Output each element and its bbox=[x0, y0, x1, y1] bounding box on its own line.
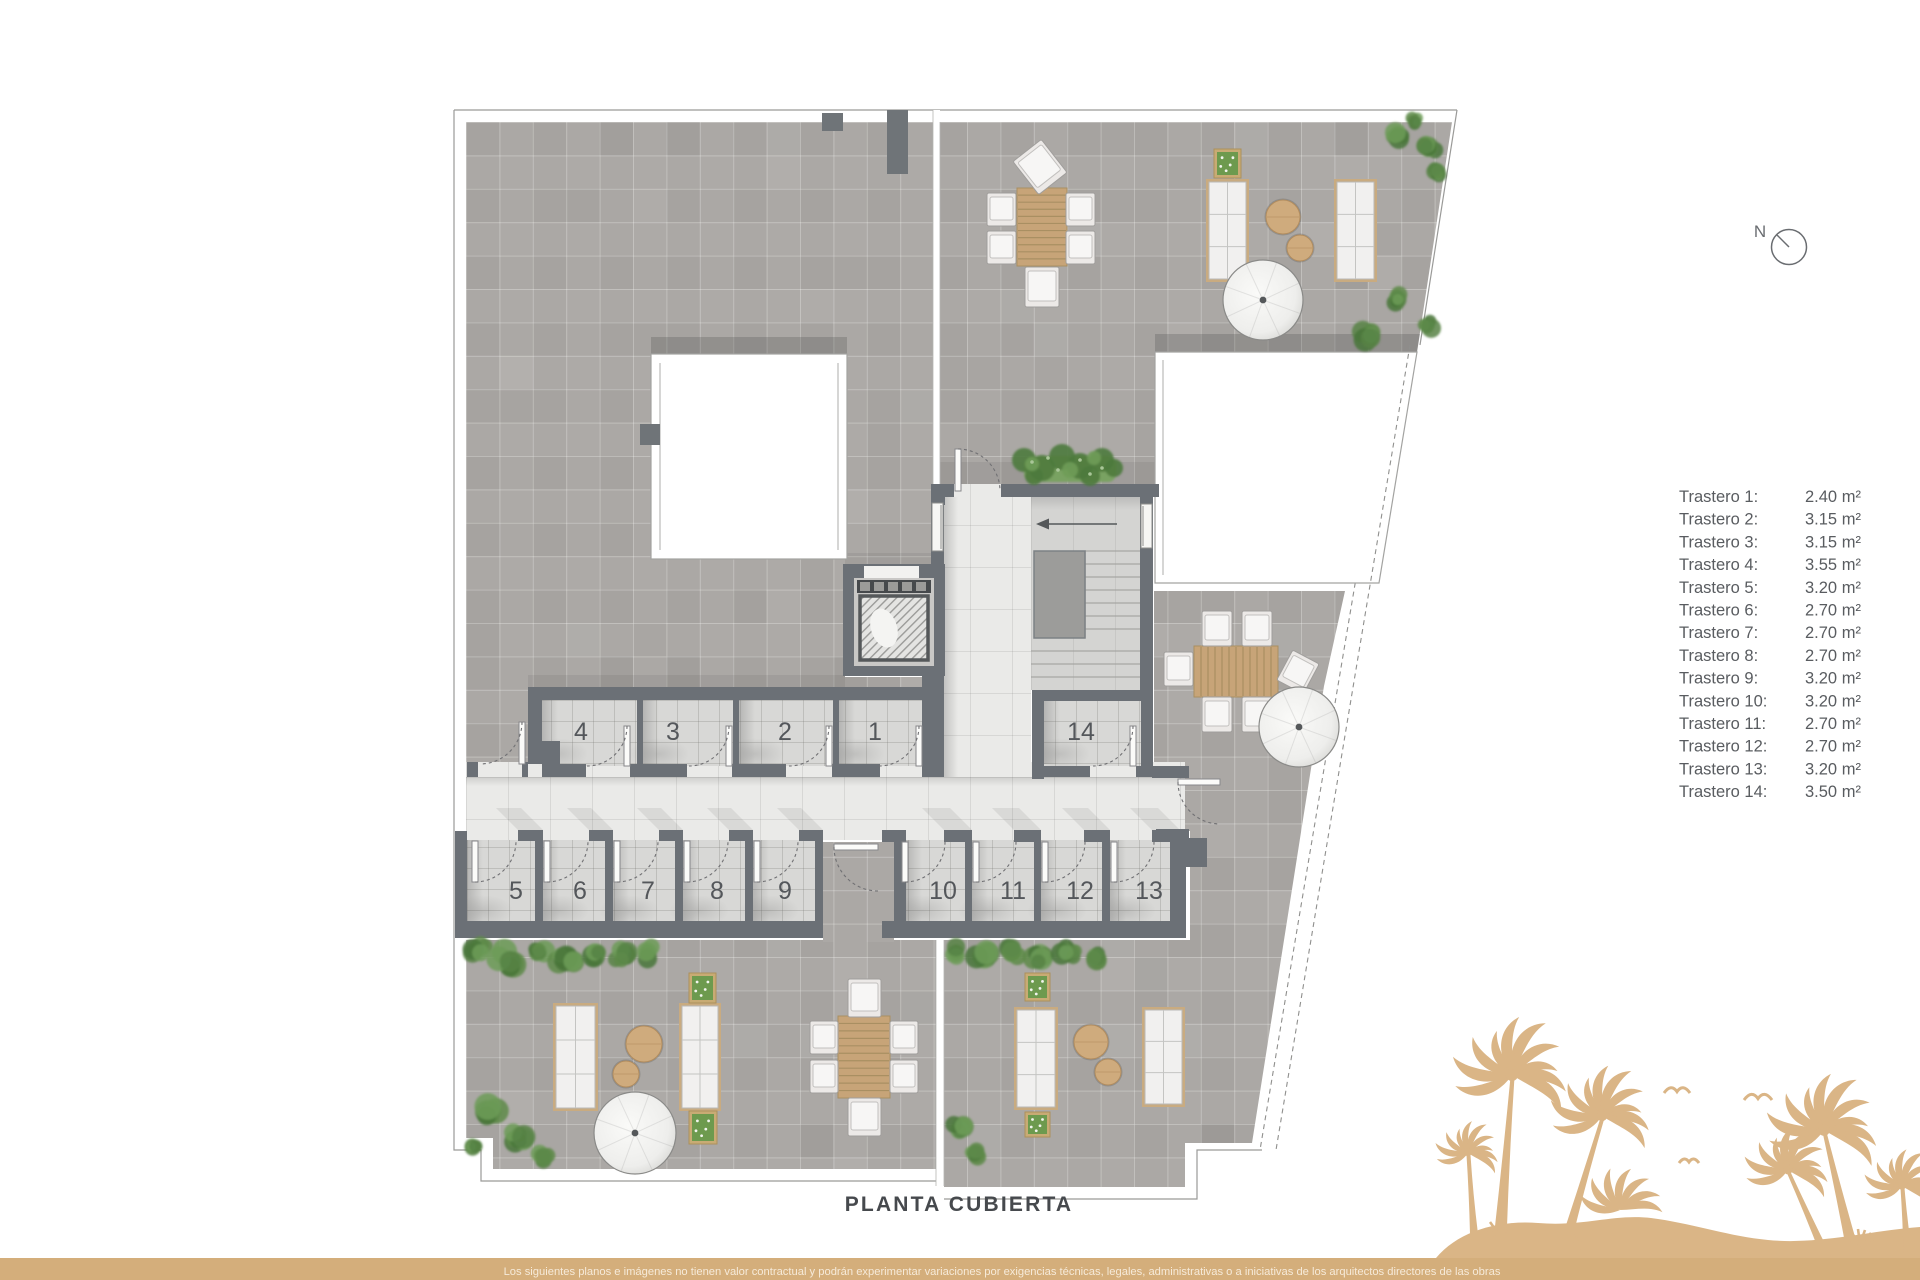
svg-text:Trastero 14:: Trastero 14: bbox=[1679, 783, 1767, 801]
svg-text:10: 10 bbox=[929, 877, 957, 905]
svg-text:3.15 m²: 3.15 m² bbox=[1805, 511, 1861, 529]
svg-text:5: 5 bbox=[509, 877, 523, 905]
svg-text:7: 7 bbox=[641, 877, 655, 905]
svg-text:Trastero 1:: Trastero 1: bbox=[1679, 488, 1758, 506]
svg-text:3.20 m²: 3.20 m² bbox=[1805, 692, 1861, 710]
svg-text:2.70 m²: 2.70 m² bbox=[1805, 647, 1861, 665]
svg-text:3.20 m²: 3.20 m² bbox=[1805, 670, 1861, 688]
svg-text:2: 2 bbox=[778, 718, 792, 746]
svg-text:Trastero 11:: Trastero 11: bbox=[1679, 715, 1766, 733]
svg-text:Trastero 2:: Trastero 2: bbox=[1679, 511, 1758, 529]
svg-text:1: 1 bbox=[868, 718, 882, 746]
svg-text:Trastero 4:: Trastero 4: bbox=[1679, 556, 1758, 574]
svg-text:14: 14 bbox=[1067, 718, 1095, 746]
svg-text:3.50 m²: 3.50 m² bbox=[1805, 783, 1861, 801]
svg-text:4: 4 bbox=[574, 718, 588, 746]
svg-text:Trastero 9:: Trastero 9: bbox=[1679, 670, 1758, 688]
svg-text:Trastero 6:: Trastero 6: bbox=[1679, 602, 1758, 620]
svg-text:3.15 m²: 3.15 m² bbox=[1805, 533, 1861, 551]
svg-text:9: 9 bbox=[778, 877, 792, 905]
svg-text:Trastero 3:: Trastero 3: bbox=[1679, 533, 1758, 551]
svg-text:Trastero 7:: Trastero 7: bbox=[1679, 624, 1758, 642]
svg-text:Los siguientes planos e imágen: Los siguientes planos e imágenes no tien… bbox=[504, 1266, 1501, 1278]
svg-text:Trastero 10:: Trastero 10: bbox=[1679, 692, 1767, 710]
svg-text:6: 6 bbox=[573, 877, 587, 905]
svg-text:2.70 m²: 2.70 m² bbox=[1805, 738, 1861, 756]
svg-text:Trastero 8:: Trastero 8: bbox=[1679, 647, 1758, 665]
svg-text:Trastero 5:: Trastero 5: bbox=[1679, 579, 1758, 597]
svg-text:2.40 m²: 2.40 m² bbox=[1805, 488, 1861, 506]
svg-text:2.70 m²: 2.70 m² bbox=[1805, 624, 1861, 642]
svg-text:3.55 m²: 3.55 m² bbox=[1805, 556, 1861, 574]
svg-text:2.70 m²: 2.70 m² bbox=[1805, 715, 1861, 733]
svg-text:PLANTA CUBIERTA: PLANTA CUBIERTA bbox=[845, 1193, 1074, 1216]
svg-text:3.20 m²: 3.20 m² bbox=[1805, 760, 1861, 778]
svg-text:13: 13 bbox=[1135, 877, 1163, 905]
svg-text:2.70 m²: 2.70 m² bbox=[1805, 602, 1861, 620]
svg-text:3.20 m²: 3.20 m² bbox=[1805, 579, 1861, 597]
svg-text:N: N bbox=[1754, 222, 1766, 241]
svg-text:12: 12 bbox=[1066, 877, 1094, 905]
svg-text:Trastero 13:: Trastero 13: bbox=[1679, 760, 1767, 778]
svg-text:8: 8 bbox=[710, 877, 724, 905]
svg-text:11: 11 bbox=[1000, 877, 1026, 905]
svg-text:3: 3 bbox=[666, 718, 680, 746]
svg-text:Trastero 12:: Trastero 12: bbox=[1679, 738, 1767, 756]
